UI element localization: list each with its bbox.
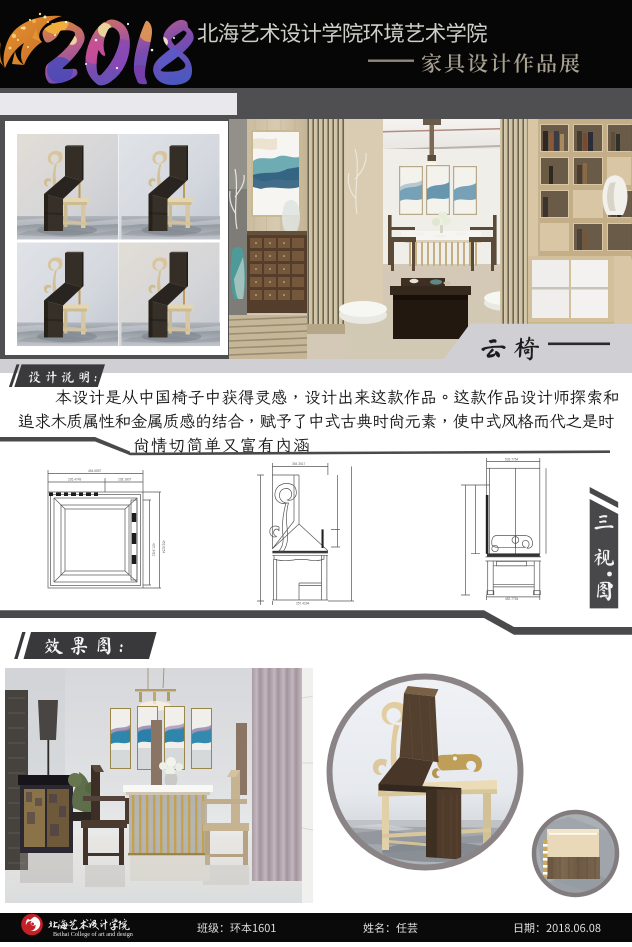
svg-text:452.7754: 452.7754 — [505, 597, 519, 601]
svg-text:454.6557: 454.6557 — [88, 469, 102, 473]
svg-text:228.1807: 228.1807 — [118, 478, 132, 482]
svg-text:437.3412: 437.3412 — [152, 543, 156, 557]
svg-text:257.4294: 257.4294 — [296, 602, 310, 606]
svg-text:533.7754: 533.7754 — [505, 457, 519, 461]
svg-text:354.3617: 354.3617 — [292, 462, 306, 466]
svg-text:226.4749: 226.4749 — [68, 478, 82, 482]
svg-text:453.6254: 453.6254 — [162, 540, 166, 554]
svg-text:Beihai College of art and desi: Beihai College of art and design — [53, 931, 133, 938]
